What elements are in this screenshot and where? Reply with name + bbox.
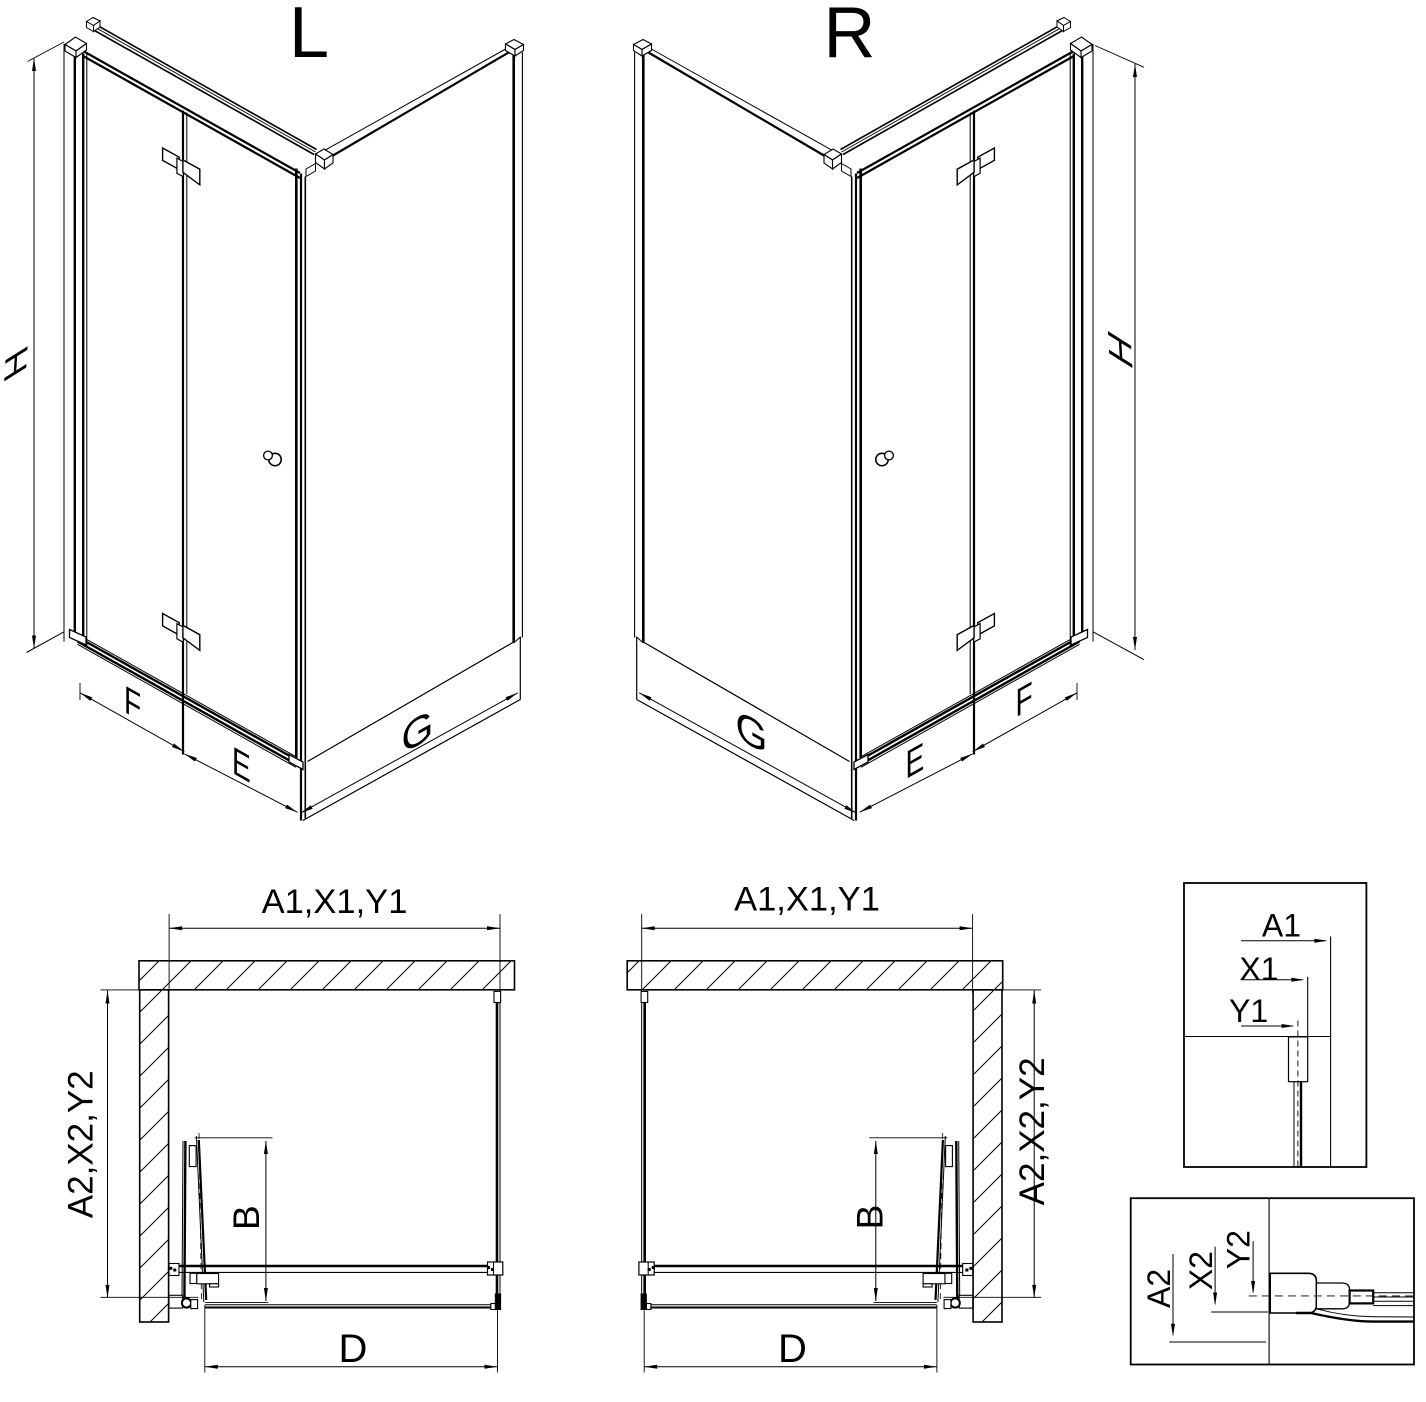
svg-text:B: B bbox=[850, 1205, 891, 1230]
svg-text:Y1: Y1 bbox=[1229, 993, 1268, 1029]
svg-text:A1: A1 bbox=[1262, 908, 1301, 944]
svg-text:D: D bbox=[339, 1327, 368, 1371]
svg-text:A2,X2,Y2: A2,X2,Y2 bbox=[62, 1070, 101, 1218]
svg-text:X1: X1 bbox=[1239, 951, 1278, 987]
svg-text:Y2: Y2 bbox=[1221, 1230, 1257, 1269]
svg-text:D: D bbox=[778, 1327, 807, 1371]
svg-text:R: R bbox=[824, 0, 876, 73]
svg-text:A2: A2 bbox=[1141, 1269, 1177, 1308]
svg-text:A2,X2,Y2: A2,X2,Y2 bbox=[1013, 1057, 1052, 1205]
svg-text:B: B bbox=[226, 1205, 267, 1230]
svg-text:X2: X2 bbox=[1183, 1251, 1219, 1290]
svg-text:A1,X1,Y1: A1,X1,Y1 bbox=[734, 881, 880, 919]
svg-text:A1,X1,Y1: A1,X1,Y1 bbox=[262, 883, 408, 921]
svg-text:L: L bbox=[289, 0, 329, 73]
